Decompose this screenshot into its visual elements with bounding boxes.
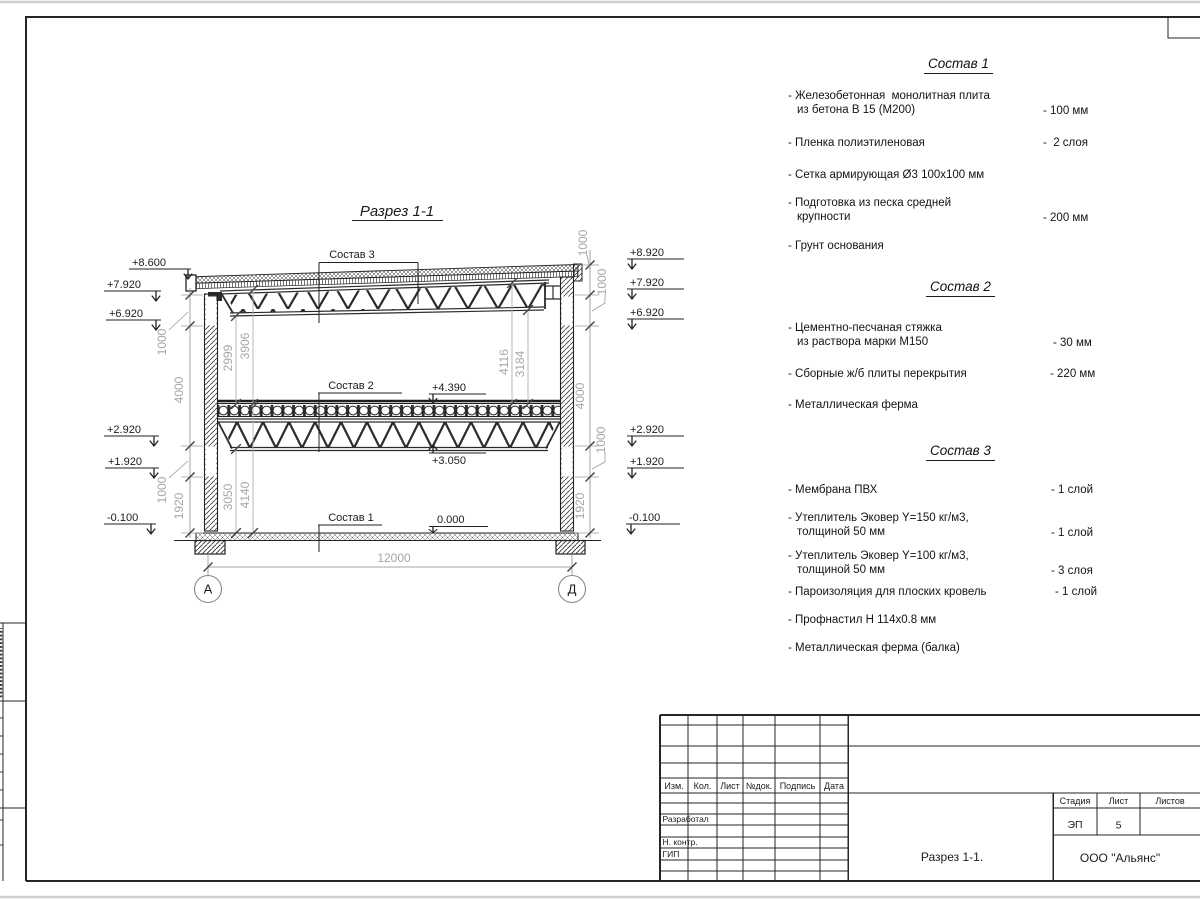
dim-label: 1920 — [573, 492, 587, 519]
elevation-label: -0.100 — [107, 512, 138, 524]
truss-bottom-elevation: +3.050 — [432, 455, 466, 467]
dim-label: 2999 — [221, 344, 235, 371]
list-item-value: - 100 мм — [1043, 105, 1088, 117]
list-item: - Сетка армирующая Ø3 100х100 мм — [788, 169, 984, 181]
elevation-label: +8.600 — [132, 257, 166, 269]
wall-left-joint-gap — [206, 447, 217, 477]
elevation-mark-arrow — [152, 291, 160, 301]
intermediate-floor — [218, 401, 561, 451]
elevation-mark-arrow — [628, 436, 636, 446]
span-dim-label: 12000 — [377, 551, 411, 565]
floor-slab — [196, 533, 578, 541]
elevation-mark-arrow — [628, 319, 636, 329]
dim-label: 4116 — [497, 349, 511, 375]
tb-company: ООО "Альянс" — [1080, 851, 1160, 865]
tb-sheet-label: Лист — [1109, 796, 1129, 806]
callout-sostav-2: Состав 2 — [328, 380, 374, 392]
elevation-label: +8.920 — [630, 247, 664, 259]
wall-left-joint-gap — [206, 297, 217, 326]
tb-doc-title: Разрез 1-1. — [921, 850, 983, 864]
list-item-value: - 200 мм — [1043, 212, 1088, 224]
dimension-chain-left: 1000 4000 1000 1920 — [155, 288, 203, 538]
tb-col-data: Дата — [824, 781, 844, 791]
list-item-value: - 3 слоя — [1051, 565, 1093, 577]
section-title: Разрез 1-1 — [352, 203, 443, 221]
foundation-pad-right — [556, 541, 585, 555]
left-margin-strip — [0, 623, 26, 881]
tb-stage-value: ЭП — [1067, 819, 1082, 831]
list-item-value: - 30 мм — [1053, 337, 1092, 349]
list-item: - Утеплитель Эковер Y=100 кг/м3, — [788, 550, 969, 562]
list-item: - Грунт основания — [788, 240, 884, 252]
tb-col-podpis: Подпись — [780, 781, 816, 791]
dim-label: 3184 — [513, 350, 527, 377]
tb-role-ncontrol: Н. контр. — [663, 837, 698, 847]
tb-col-list: Лист — [720, 781, 740, 791]
list-item: - Металлическая ферма (балка) — [788, 642, 960, 654]
axis-label-a: А — [204, 582, 213, 597]
wall-left — [205, 294, 218, 531]
list-item: из раствора марки М150 — [797, 336, 928, 348]
tb-role-gip: ГИП — [663, 849, 680, 859]
list-item: - Мембрана ПВХ — [788, 484, 877, 496]
tb-sheet-value: 5 — [1116, 820, 1122, 832]
list-item: - Пленка полиэтиленовая — [788, 137, 925, 149]
elevation-mark-arrow — [152, 320, 160, 330]
wall-right-joint-gap — [562, 447, 573, 477]
elevation-mark-arrow — [628, 289, 636, 299]
dim-label: 1000 — [576, 229, 590, 256]
list-item-value: - 1 слой — [1051, 484, 1093, 496]
list-item: - Утеплитель Эковер Y=150 кг/м3, — [788, 512, 969, 524]
blueprint-sheet: А Д 12000 1000 4000 1000 1920 1000 100 — [0, 0, 1200, 900]
floor2-truss — [218, 419, 561, 451]
elevation-label: -0.100 — [629, 512, 660, 524]
tb-sheets-label: Листов — [1155, 796, 1184, 806]
elevation-label: +6.920 — [109, 308, 143, 320]
elevation-label: +7.920 — [107, 279, 141, 291]
drawing-canvas: А Д 12000 1000 4000 1000 1920 1000 100 — [0, 0, 1200, 900]
tb-role-developer: Разработал — [663, 814, 709, 824]
dim-label: 1000 — [595, 268, 609, 295]
elevation-mark-arrow — [628, 468, 636, 478]
elevation-mark-arrow — [627, 524, 635, 534]
span-dimension: 12000 — [204, 551, 577, 572]
elevation-mark-arrow — [628, 259, 636, 269]
list-item: толщиной 50 мм — [797, 526, 885, 538]
tb-col-kol: Кол. — [694, 781, 712, 791]
foundation-pad-left — [195, 541, 225, 555]
elevation-mark-arrow — [150, 468, 158, 478]
list-item: - Подготовка из песка средней — [788, 197, 951, 209]
floor-zero-elevation: 0.000 — [437, 514, 465, 526]
list-item: - Цементно-песчаная стяжка — [788, 322, 942, 334]
dim-label: 3906 — [238, 332, 252, 359]
dim-label: 4000 — [172, 376, 186, 403]
elevation-mark-arrow — [147, 524, 155, 534]
sostav1-title: Состав 1 — [924, 56, 993, 74]
elevation-mark-arrow — [429, 527, 437, 533]
elevation-label: +7.920 — [630, 277, 664, 289]
roof-edge-block-right — [574, 264, 583, 281]
tb-stage-label: Стадия — [1060, 796, 1091, 806]
elevation-marks-right: +8.920 +7.920 +6.920 +2.920 +1.920 -0.10… — [626, 247, 684, 534]
elevation-label: +2.920 — [630, 424, 664, 436]
list-item: - Профнастил Н 114х0.8 мм — [788, 614, 936, 626]
list-item-value: - 220 мм — [1050, 368, 1095, 380]
dim-label: 1000 — [155, 476, 169, 503]
dim-label: 1920 — [172, 492, 186, 519]
slab-top-elevation: +4.390 — [432, 382, 466, 394]
hollow-core-slab — [218, 404, 561, 417]
dim-label: 4000 — [573, 382, 587, 409]
drawing-frame — [26, 17, 1200, 881]
tb-col-ndok: №док. — [746, 781, 772, 791]
dim-label: 1000 — [594, 426, 608, 453]
dim-label: 3050 — [221, 483, 235, 510]
elevation-mark-arrow — [150, 436, 158, 446]
list-item: - Железобетонная монолитная плита — [788, 90, 990, 102]
dim-label: 1000 — [155, 328, 169, 355]
list-item: из бетона В 15 (М200) — [797, 104, 915, 116]
elevation-label: +6.920 — [630, 307, 664, 319]
list-item-value: - 2 слоя — [1043, 137, 1088, 149]
axis-label-d: Д — [568, 582, 577, 597]
list-item-value: - 1 слой — [1051, 527, 1093, 539]
elevation-label: +1.920 — [108, 456, 142, 468]
rotated-stamp-text-clipped — [0, 628, 2, 698]
list-item: - Сборные ж/б плиты перекрытия — [788, 368, 967, 380]
sostav3-title: Состав 3 — [926, 443, 995, 461]
wall-right-joint-gap — [562, 297, 573, 326]
sostav2-title: Состав 2 — [926, 279, 995, 297]
dim-label: 4140 — [238, 481, 252, 508]
tb-col-izm: Изм. — [664, 781, 683, 791]
callout-sostav-1: Состав 1 — [328, 512, 374, 524]
list-item: крупности — [797, 211, 850, 223]
list-item: - Металлическая ферма — [788, 399, 918, 411]
elevation-label: +1.920 — [630, 456, 664, 468]
list-item: - Пароизоляция для плоских кровель — [788, 586, 987, 598]
roof-truss-bearing-right — [545, 286, 561, 299]
list-item-value: - 1 слой — [1055, 586, 1097, 598]
section-title-text: Разрез 1-1 — [360, 203, 434, 220]
title-block: Изм. Кол. Лист №док. Подпись Дата Разраб… — [660, 715, 1200, 881]
elevation-label: +2.920 — [107, 424, 141, 436]
list-item: толщиной 50 мм — [797, 564, 885, 576]
callout-sostav-3: Состав 3 — [329, 249, 375, 261]
